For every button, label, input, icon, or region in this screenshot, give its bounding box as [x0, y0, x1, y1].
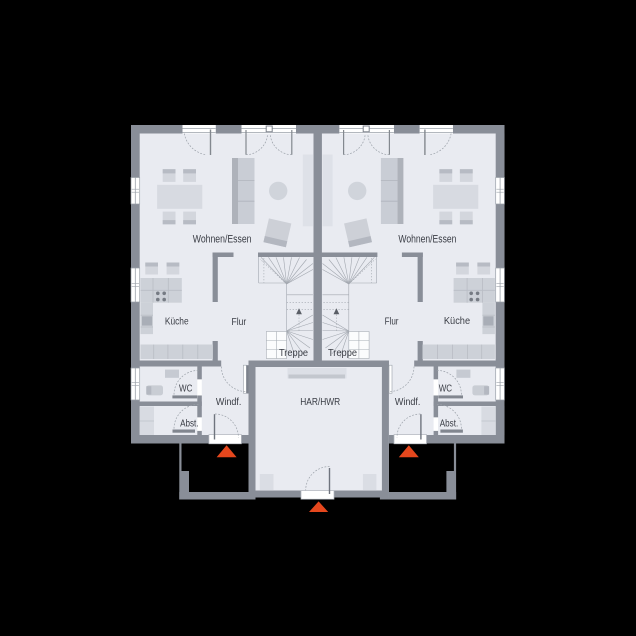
svg-text:Wohnen/Essen: Wohnen/Essen: [398, 233, 456, 245]
svg-text:WC: WC: [439, 383, 452, 394]
svg-text:Abst.: Abst.: [440, 419, 458, 430]
svg-text:Wohnen/Essen: Wohnen/Essen: [193, 233, 252, 245]
svg-text:Flur: Flur: [232, 317, 247, 328]
svg-text:Küche: Küche: [444, 316, 470, 327]
svg-text:Treppe: Treppe: [328, 348, 357, 359]
svg-text:Windf.: Windf.: [216, 397, 242, 408]
svg-text:Küche: Küche: [165, 317, 189, 328]
svg-text:Treppe: Treppe: [279, 348, 308, 359]
svg-text:WC: WC: [179, 383, 192, 394]
svg-text:Flur: Flur: [385, 317, 399, 328]
svg-text:HAR/HWR: HAR/HWR: [300, 397, 340, 408]
svg-text:Abst.: Abst.: [180, 419, 198, 430]
svg-text:Windf.: Windf.: [395, 397, 421, 408]
